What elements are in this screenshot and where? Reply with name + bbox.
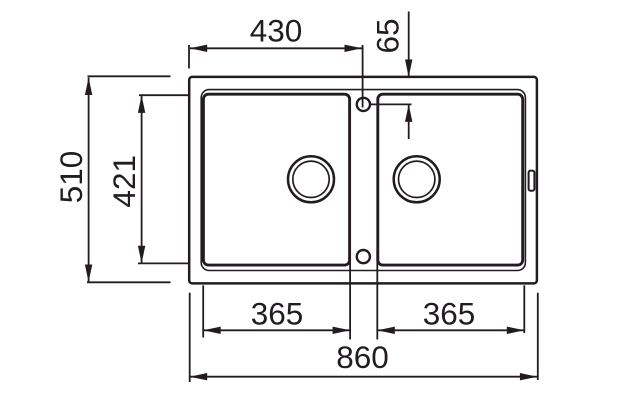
svg-text:860: 860 — [336, 339, 389, 375]
svg-text:430: 430 — [250, 13, 303, 49]
svg-text:365: 365 — [423, 296, 476, 332]
svg-text:421: 421 — [106, 155, 142, 208]
svg-text:365: 365 — [251, 296, 304, 332]
svg-text:65: 65 — [370, 18, 406, 53]
svg-text:510: 510 — [53, 151, 89, 204]
